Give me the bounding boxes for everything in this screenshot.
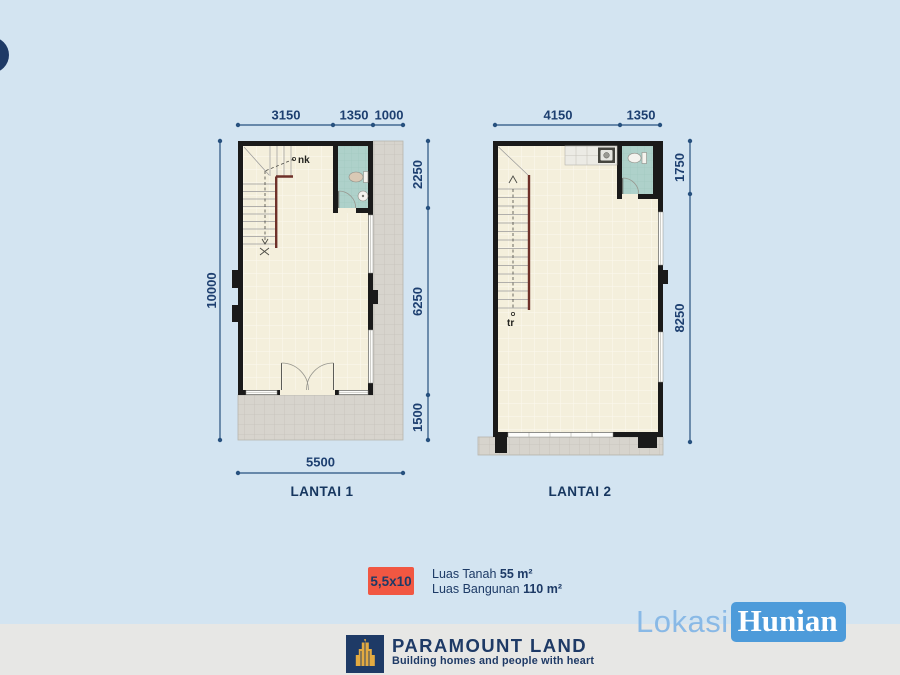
dimension-bottom-f1: 5500 — [236, 455, 405, 476]
toilet-icon — [349, 172, 363, 182]
svg-text:1350: 1350 — [627, 108, 656, 123]
svg-text:1000: 1000 — [375, 108, 404, 123]
svg-text:1350: 1350 — [340, 108, 369, 123]
paramount-land-logo: PARAMOUNT LAND Building homes and people… — [346, 635, 594, 673]
svg-text:10000: 10000 — [205, 272, 219, 308]
floor1-label: LANTAI 1 — [291, 484, 354, 499]
dimension-top-f1: 3150 1350 1000 — [236, 108, 405, 128]
watermark-lokasi: Lokasi — [636, 603, 729, 641]
spec-summary: 5,5x10 Luas Tanah 55 m² Luas Bangunan 11… — [368, 565, 562, 597]
land-area-line: Luas Tanah 55 m² — [432, 567, 562, 582]
paramount-building-icon — [346, 635, 384, 673]
stair-label-f2: tr — [507, 318, 514, 329]
svg-text:6250: 6250 — [410, 287, 425, 316]
svg-text:2250: 2250 — [410, 160, 425, 189]
spec-lines: Luas Tanah 55 m² Luas Bangunan 110 m² — [432, 565, 562, 597]
svg-text:3150: 3150 — [272, 108, 301, 123]
bathroom — [617, 141, 663, 199]
stair-label-f1: nk — [298, 155, 310, 166]
land-area-value: 55 m² — [500, 567, 533, 581]
svg-text:8250: 8250 — [672, 304, 687, 333]
paramount-text: PARAMOUNT LAND Building homes and people… — [392, 635, 594, 668]
watermark-hunian: Hunian — [731, 602, 846, 642]
toilet-icon — [628, 153, 641, 163]
floorplan-flyer: nk 3150 1350 1000 — [0, 0, 900, 675]
dimension-right-f2: 1750 8250 — [672, 139, 692, 444]
dimension-right-f1: 2250 6250 1500 — [410, 139, 430, 442]
lokasihunian-watermark: Lokasi Hunian — [636, 602, 846, 642]
svg-text:4150: 4150 — [544, 108, 573, 123]
land-area-label: Luas Tanah — [432, 567, 496, 581]
svg-text:1500: 1500 — [410, 403, 425, 432]
building-area-line: Luas Bangunan 110 m² — [432, 582, 562, 597]
building-area-label: Luas Bangunan — [432, 582, 520, 596]
building-area-value: 110 m² — [523, 582, 562, 596]
brand-name: PARAMOUNT LAND — [392, 636, 594, 655]
size-badge: 5,5x10 — [368, 567, 414, 595]
kitchen-counter — [565, 146, 617, 165]
dimension-top-f2: 4150 1350 — [493, 108, 662, 128]
svg-text:1750: 1750 — [672, 153, 687, 182]
bathroom — [333, 141, 373, 213]
floor2-label: LANTAI 2 — [549, 484, 612, 499]
floorplan-lantai-2: tr 4150 1350 1750 8250 LANTAI 2 — [470, 105, 710, 505]
corner-dot-decoration — [0, 37, 9, 73]
dimension-left-f1: 10000 — [205, 139, 222, 442]
svg-text:5500: 5500 — [306, 455, 335, 470]
floorplan-lantai-1: nk 3150 1350 1000 — [205, 105, 445, 505]
brand-tagline: Building homes and people with heart — [392, 655, 594, 668]
